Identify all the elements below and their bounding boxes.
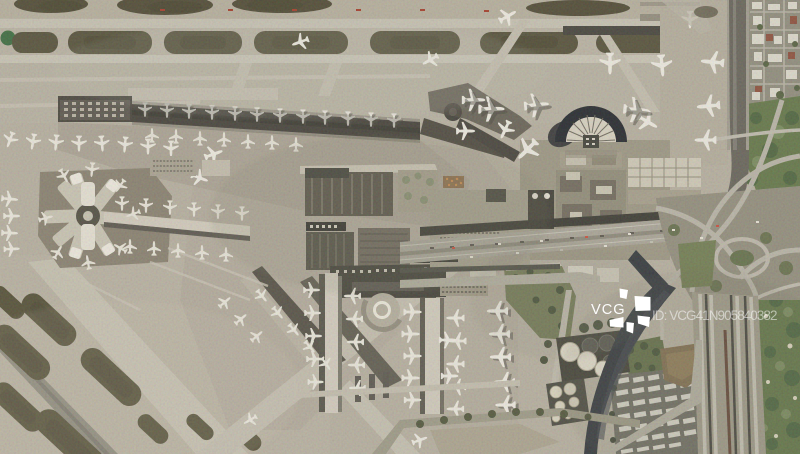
svg-text:VCG: VCG — [591, 302, 626, 318]
svg-text:ID: VCG41N905840382: ID: VCG41N905840382 — [652, 308, 777, 323]
